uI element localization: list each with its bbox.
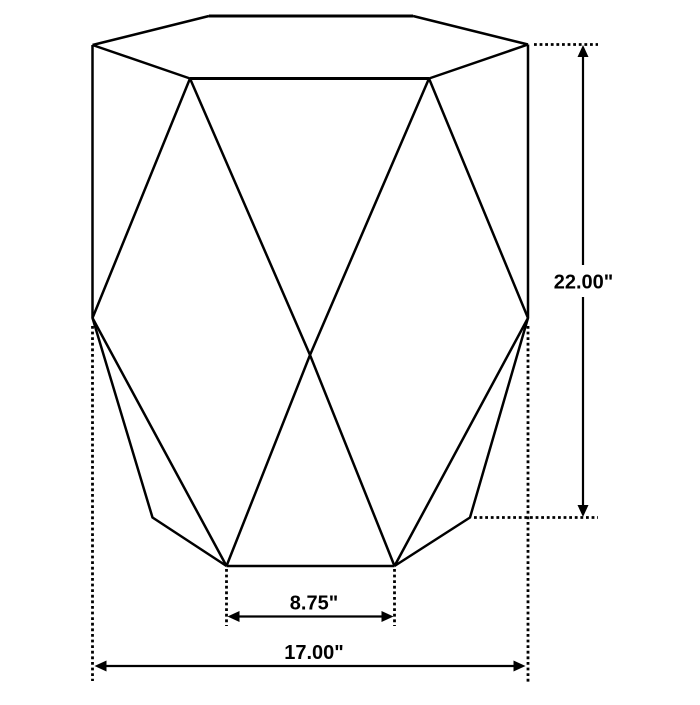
svg-text:22.00": 22.00"	[554, 272, 614, 294]
svg-text:8.75": 8.75"	[290, 593, 338, 615]
svg-text:17.00": 17.00"	[284, 642, 344, 664]
